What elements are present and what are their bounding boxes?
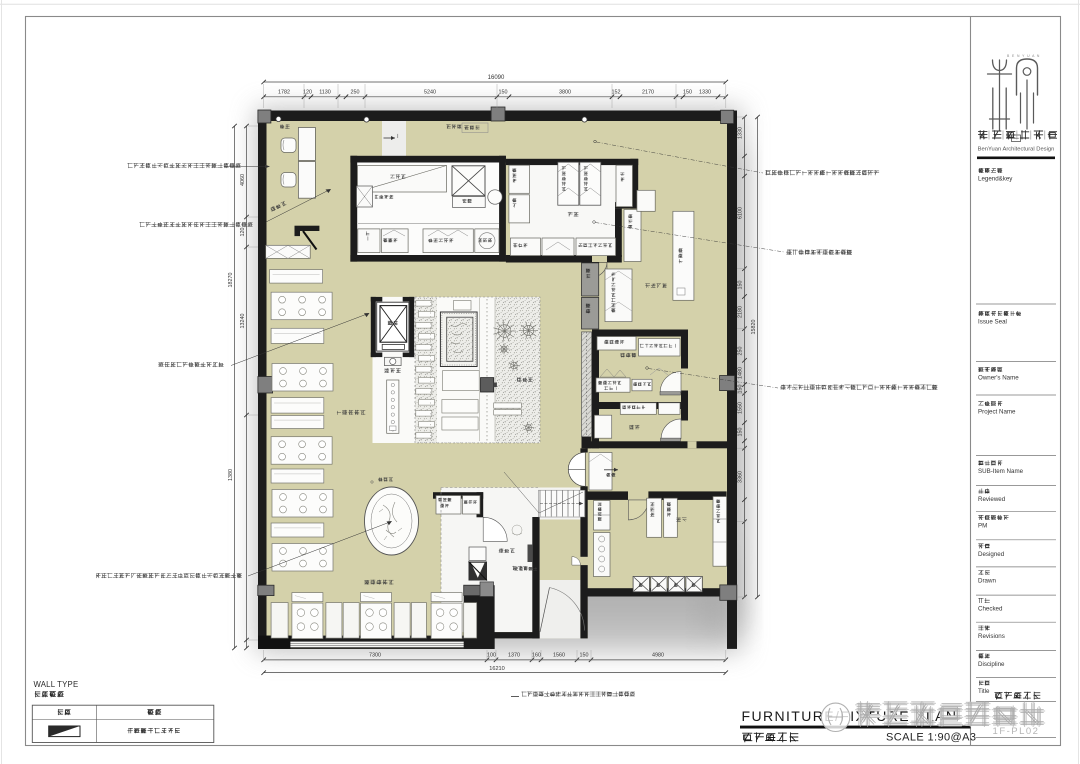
svg-text:Title: Title — [978, 688, 990, 695]
svg-text:6100: 6100 — [738, 207, 744, 219]
svg-text:Revisions: Revisions — [978, 633, 1005, 640]
svg-text:Legend&key: Legend&key — [978, 176, 1013, 183]
svg-text:Discipline: Discipline — [978, 661, 1005, 668]
svg-text:4980: 4980 — [652, 653, 664, 659]
svg-text:120: 120 — [240, 228, 246, 237]
svg-text:13240: 13240 — [240, 314, 246, 329]
svg-text:1370: 1370 — [508, 653, 520, 659]
svg-text:Project Name: Project Name — [978, 409, 1016, 416]
svg-text:2170: 2170 — [642, 90, 654, 96]
svg-text:16210: 16210 — [489, 666, 505, 672]
svg-text:1550: 1550 — [738, 402, 744, 414]
svg-text:1480: 1480 — [738, 367, 744, 379]
svg-text:3800: 3800 — [559, 90, 571, 96]
svg-text:Designed: Designed — [978, 551, 1005, 558]
svg-text:2180: 2180 — [738, 306, 744, 318]
svg-text:150: 150 — [499, 90, 508, 96]
svg-text:1330: 1330 — [699, 90, 711, 96]
svg-text:150: 150 — [683, 90, 692, 96]
svg-text:1380: 1380 — [228, 469, 234, 481]
svg-text:1130: 1130 — [319, 90, 331, 96]
svg-text:BenYuan Architectural Design: BenYuan Architectural Design — [978, 147, 1055, 153]
svg-text:150: 150 — [738, 281, 744, 290]
svg-text:1330: 1330 — [738, 127, 744, 139]
svg-text:B E N Y U A N: B E N Y U A N — [1007, 54, 1040, 58]
svg-text:WALL TYPE: WALL TYPE — [34, 680, 79, 689]
svg-text:5240: 5240 — [424, 90, 436, 96]
svg-text:1560: 1560 — [553, 653, 565, 659]
svg-text:4060: 4060 — [240, 174, 246, 186]
svg-text:150: 150 — [580, 653, 589, 659]
svg-text:1782: 1782 — [278, 90, 290, 96]
svg-text:1F-PL02: 1F-PL02 — [993, 726, 1040, 737]
svg-text:Issue Seal: Issue Seal — [978, 319, 1007, 326]
svg-text:15820: 15820 — [751, 320, 757, 335]
svg-text:Owner's Name: Owner's Name — [978, 375, 1019, 382]
svg-text:SUB-Item Name: SUB-Item Name — [978, 468, 1024, 475]
svg-text:160: 160 — [532, 653, 541, 659]
svg-text:7300: 7300 — [369, 653, 381, 659]
svg-text:SCALE 1:90@A3: SCALE 1:90@A3 — [886, 732, 976, 744]
svg-text:100: 100 — [487, 653, 496, 659]
svg-text:120: 120 — [303, 90, 312, 96]
svg-text:150: 150 — [738, 385, 744, 394]
svg-text:PM: PM — [978, 523, 987, 530]
svg-text:152: 152 — [612, 90, 621, 96]
svg-text:18270: 18270 — [228, 273, 234, 288]
svg-text:Reviewed: Reviewed — [978, 496, 1006, 503]
svg-text:3360: 3360 — [738, 471, 744, 483]
svg-text:250: 250 — [351, 90, 360, 96]
svg-text:Drawn: Drawn — [978, 578, 996, 585]
svg-text:150: 150 — [738, 428, 744, 437]
svg-text:Checked: Checked — [978, 606, 1003, 613]
svg-text:250: 250 — [738, 347, 744, 356]
svg-text:16090: 16090 — [488, 75, 505, 81]
